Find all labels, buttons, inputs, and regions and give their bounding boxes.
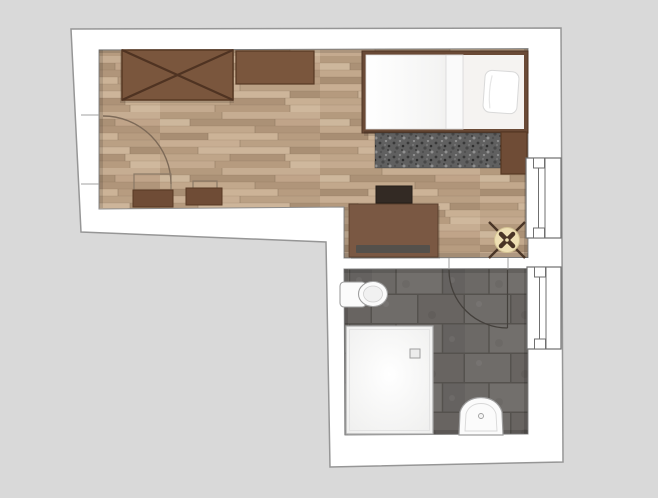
duvet-fold <box>446 55 463 129</box>
floor-plan <box>0 0 658 498</box>
window-main-frame <box>526 158 561 238</box>
floor-plan-screenshot <box>0 0 658 498</box>
window-main <box>526 158 561 238</box>
window-main-mullion-bottom <box>534 228 545 238</box>
pillow <box>483 70 520 114</box>
toilet <box>340 282 388 308</box>
shower-drain <box>410 349 420 358</box>
desk-drawer <box>356 245 430 253</box>
toilet-bowl-inner <box>364 286 383 302</box>
bench-left <box>133 190 173 207</box>
window-main-mullion-top <box>534 158 545 168</box>
round-stool <box>489 222 525 258</box>
washbasin <box>459 398 503 436</box>
window-bathroom-mullion-top <box>535 267 546 277</box>
washbasin-drain <box>479 414 484 419</box>
wardrobe-with-cross <box>120 50 234 103</box>
nightstand <box>501 132 527 174</box>
single-bed <box>362 51 528 136</box>
desk-chair <box>376 186 412 203</box>
window-bathroom-mullion-bottom <box>535 339 546 349</box>
sideboard <box>236 51 314 84</box>
shaggy-rug <box>375 133 502 168</box>
stool-seat-center <box>505 238 509 242</box>
window-bathroom <box>527 267 561 349</box>
window-bathroom-frame <box>527 267 561 349</box>
bench-right <box>186 188 222 205</box>
shower-tray <box>346 326 433 434</box>
shower-base <box>346 326 433 434</box>
